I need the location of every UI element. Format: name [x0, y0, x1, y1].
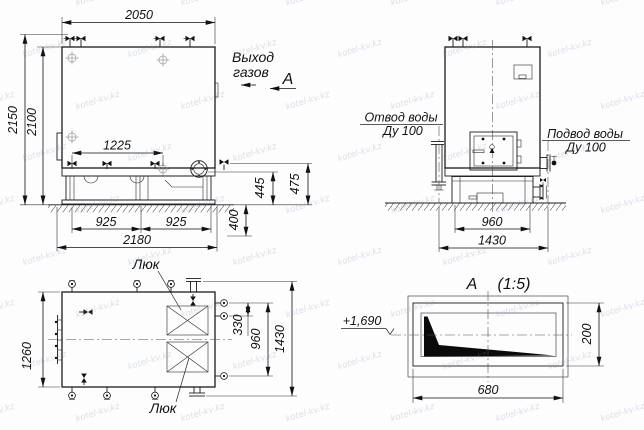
side-dimensions: 960 1430: [439, 205, 548, 252]
dim-2180: 2180: [122, 233, 151, 247]
dim-400: 400: [227, 210, 241, 231]
side-view: 960 1430 Отвод воды Ду 100 Подвод воды Д…: [360, 36, 630, 252]
dim-475: 475: [288, 174, 302, 195]
dim-925-left: 925: [96, 215, 117, 229]
hatch-leader-top: [158, 271, 181, 310]
nameplate: [514, 65, 532, 79]
section-a-label: А: [282, 71, 294, 88]
dim-960-plan: 960: [249, 329, 263, 350]
water-inlet-label-1: Подвод воды: [547, 127, 623, 141]
dim-1430-side: 1430: [478, 234, 506, 248]
dim-925-right: 925: [166, 215, 187, 229]
boiler-technical-drawing: 2050 2150 2100 1225 925 925 2180 400 445: [0, 0, 644, 430]
front-dimensions: 2050 2150 2100 1225 925 925 2180 400 445: [6, 8, 312, 252]
ground-front: [20, 205, 312, 213]
detail-view-a: А (1:5) +1,690 200 680: [341, 276, 604, 403]
gas-outlet-label-2: газов: [233, 64, 269, 80]
drawing-sheet: 2050 2150 2100 1225 925 925 2180 400 445: [0, 0, 644, 430]
door-hinge: [517, 140, 521, 147]
hatch-bottom: [167, 342, 208, 372]
side-bracket: [57, 133, 62, 160]
dim-680: 680: [478, 383, 499, 397]
gas-outlet-label-1: Выход: [232, 49, 274, 65]
dim-1430-plan: 1430: [273, 325, 287, 353]
water-inlet-label-2: Ду 100: [564, 141, 606, 155]
ash-drawer: [477, 193, 503, 203]
blowdown-flange: [533, 178, 547, 200]
elevation-value: +1,690: [343, 314, 382, 328]
gas-outlet-callout: Выход газов А: [232, 49, 296, 89]
ground-side: [385, 203, 566, 211]
flange-face: [191, 161, 208, 178]
boiler-body-front: [62, 47, 215, 168]
plan-bottom-fittings: [69, 387, 205, 400]
cross-marker: [157, 54, 170, 67]
water-outlet-pipe: [431, 126, 446, 203]
dim-1260: 1260: [20, 342, 34, 370]
dim-960-side: 960: [482, 215, 503, 229]
cross-marker: [66, 52, 79, 65]
top-valves-front: [64, 36, 195, 47]
hatch-label-bottom: Люк: [149, 400, 178, 416]
foundation-front: [62, 176, 215, 204]
water-inlet-pipe: [540, 141, 557, 203]
dim-2050: 2050: [124, 8, 153, 22]
hatch-leader-bottom: [176, 358, 189, 402]
dim-2100: 2100: [25, 108, 39, 137]
detail-title: А: [466, 276, 478, 293]
dim-200: 200: [580, 324, 594, 346]
dim-445: 445: [253, 178, 267, 199]
furnace-door: [470, 132, 521, 170]
plan-view: 330 960 1430 1260 Люк: [20, 279, 297, 417]
hatch-label-top: Люк: [132, 256, 161, 272]
water-outlet-label-1: Отвод воды: [364, 111, 437, 125]
front-view: 2050 2150 2100 1225 925 925 2180 400 445: [6, 8, 312, 310]
plan-top-fittings: [69, 279, 201, 293]
duct-baffle: [424, 317, 554, 357]
door-handle: [473, 150, 484, 153]
detail-scale: (1:5): [498, 276, 531, 293]
top-valves-side: [449, 36, 532, 47]
cross-marker: [66, 131, 79, 144]
dim-330: 330: [231, 315, 245, 336]
dim-1225: 1225: [103, 139, 131, 153]
water-outlet-label-2: Ду 100: [381, 124, 423, 138]
pipe-callouts: Отвод воды Ду 100 Подвод воды Ду 100: [360, 111, 630, 155]
hatch-top: [167, 306, 208, 335]
door-hinge: [517, 156, 521, 163]
dim-2150: 2150: [6, 106, 20, 135]
elevation-mark: +1,690: [341, 314, 394, 335]
